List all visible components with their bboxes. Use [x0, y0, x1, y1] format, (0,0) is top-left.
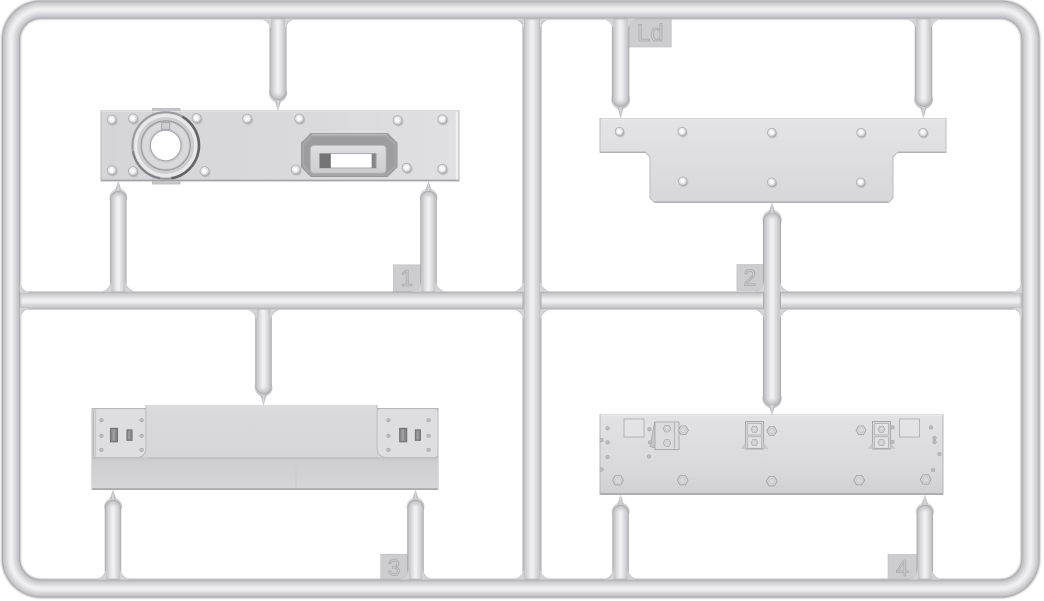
svg-text:Ld: Ld	[637, 20, 664, 47]
svg-text:3: 3	[388, 555, 401, 581]
svg-text:2: 2	[744, 265, 757, 291]
svg-text:4: 4	[896, 555, 909, 581]
svg-text:1: 1	[400, 265, 413, 291]
